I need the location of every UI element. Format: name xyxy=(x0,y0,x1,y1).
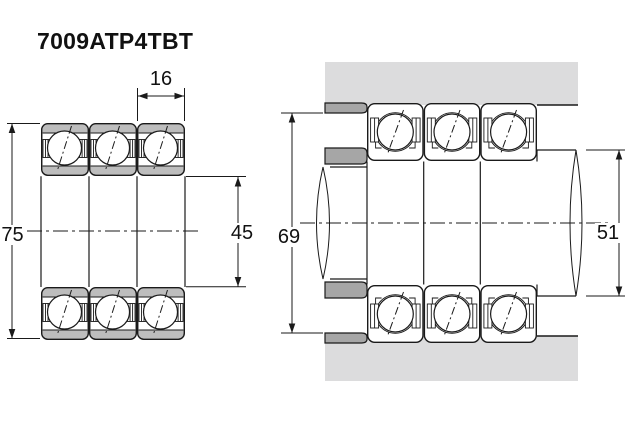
mounting-view xyxy=(281,62,625,381)
bearing-row-bottom xyxy=(42,288,185,340)
dim-shaft-abutment-diameter: 51 xyxy=(595,223,621,243)
bearing-row-top xyxy=(42,124,185,176)
technical-drawing-canvas xyxy=(0,0,640,440)
housing-block-top xyxy=(325,62,578,105)
cross-section-view xyxy=(7,88,246,339)
bearing-designation: 7009ATP4TBT xyxy=(37,28,193,55)
dim-bearing-width: 16 xyxy=(148,69,174,89)
dim-outer-diameter: 75 xyxy=(0,225,26,245)
dim-housing-abutment-diameter: 69 xyxy=(276,227,302,247)
bearing-drawing: 7009ATP4TBT 75 45 16 69 51 xyxy=(0,0,640,440)
ring-face-lines xyxy=(41,176,185,287)
housing-bore-lines xyxy=(537,105,578,336)
dim-bore-diameter: 45 xyxy=(229,223,255,243)
